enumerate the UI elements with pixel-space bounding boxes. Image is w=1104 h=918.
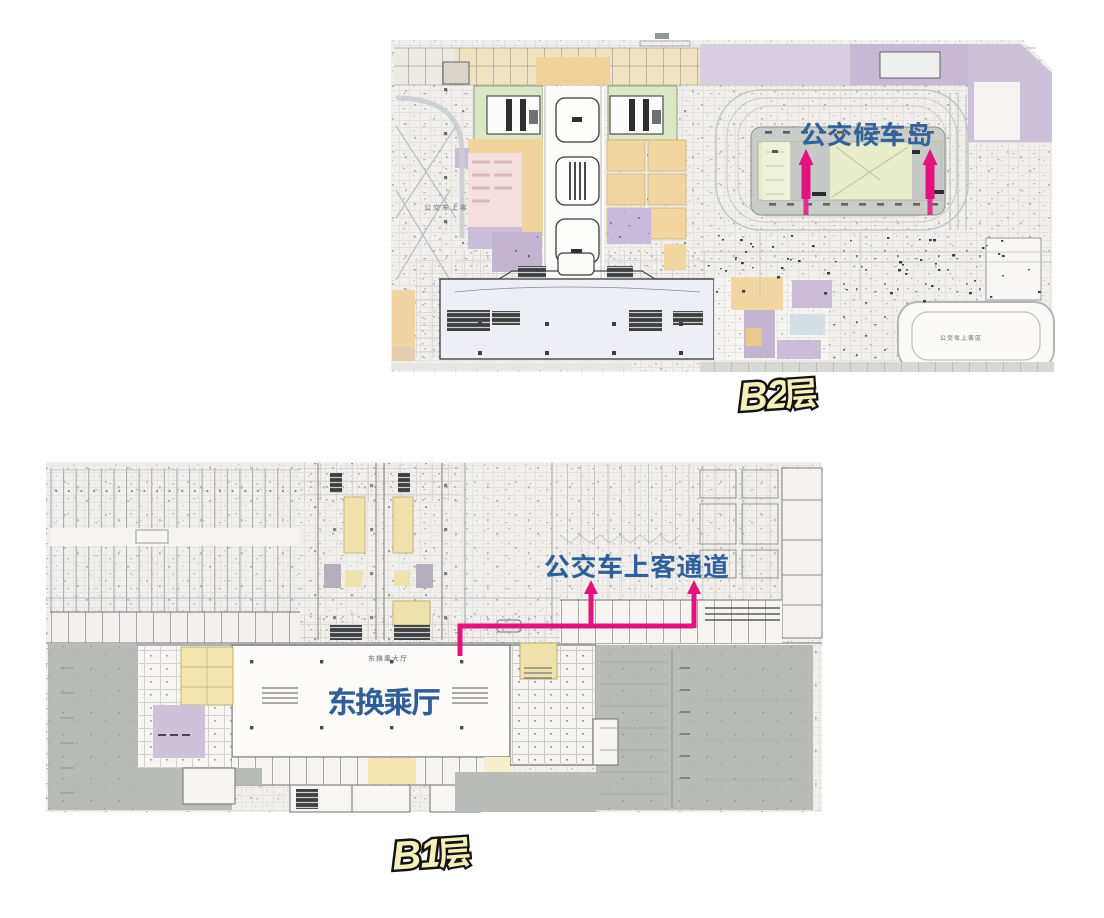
svg-text:B1: B1 xyxy=(391,831,443,878)
svg-text:B2: B2 xyxy=(737,372,790,419)
